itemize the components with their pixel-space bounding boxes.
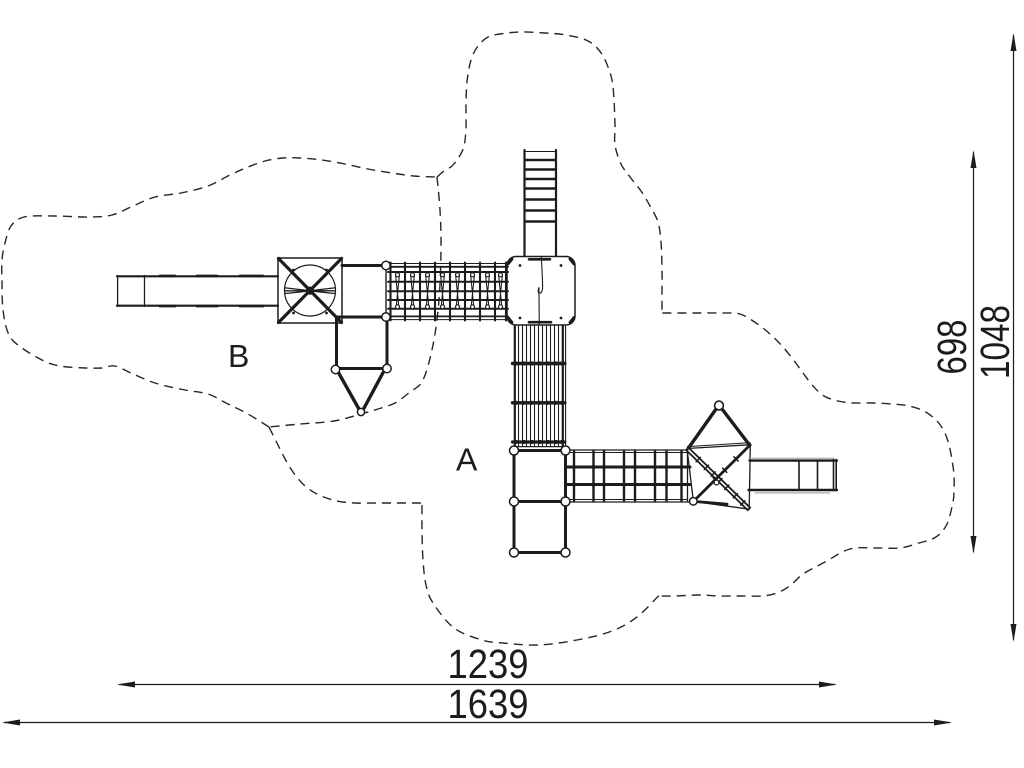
svg-text:1048: 1048 — [972, 305, 1018, 379]
svg-text:698: 698 — [929, 320, 975, 375]
svg-text:B: B — [228, 338, 249, 374]
svg-text:1639: 1639 — [448, 681, 529, 727]
svg-text:A: A — [456, 442, 478, 478]
